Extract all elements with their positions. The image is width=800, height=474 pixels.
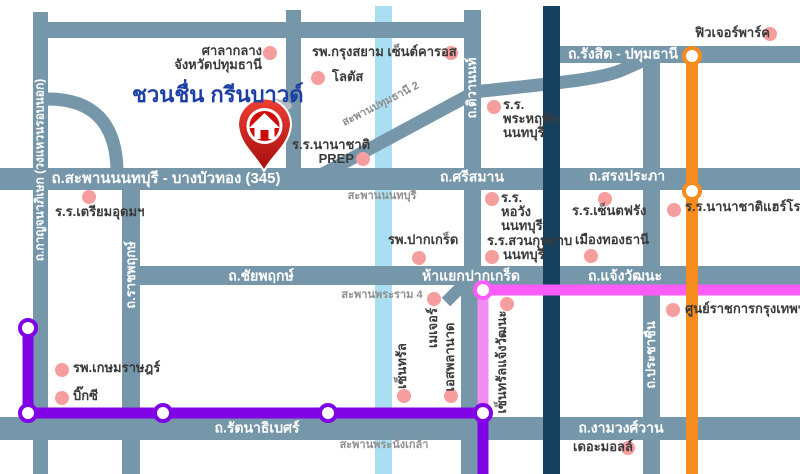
road-label-hayaek-pakkret: ห้าแยกปากเกร็ด	[422, 268, 520, 283]
road-label-srisaman: ถ.ศรีสมาน	[440, 169, 504, 184]
road-label-rangsit: ถ.รังสิต - ปทุมธานี	[568, 46, 678, 61]
station-marker	[475, 405, 491, 421]
road-prachachuen	[643, 55, 660, 474]
bridge-label-rama4: สะพานพระราม 4	[341, 290, 422, 302]
landmark-triamudom-school: ร.ร.เตรียมอุดมฯ	[55, 205, 144, 219]
road-top	[33, 22, 480, 38]
landmark-label: จังหวัดปทุมธานี	[170, 58, 262, 72]
road-label-prachachuen: ถ.ประชาชื่น	[644, 321, 658, 389]
landmark-central-chaengwatthana: เซ็นทรัลแจ้งวัฒนะ	[495, 311, 509, 414]
road-label-chaengwatthana: ถ.แจ้งวัฒนะ	[588, 268, 662, 283]
landmark-muangthong: เมืองทองธานี	[575, 233, 649, 247]
landmark-dot	[311, 71, 325, 85]
landmark-horwang-school: ร.ร. หอวัง นนทบุรี	[501, 191, 543, 233]
landmark-stfrancis-school: ร.ร.เซ็นตฟรัง	[572, 204, 646, 218]
landmark-label: ร.ร.สวนกุหลาบ	[487, 234, 572, 248]
landmark-krungsiam-hospital: รพ.กรุงสยาม เซ็นต์คารอส	[312, 45, 457, 59]
landmark-prep-school: ร.ร.นานาชาติ PREP	[292, 138, 354, 166]
location-map: ชวนชื่น กรีนบาวด์ ถ.สะพานนนทบุรี - บางบั…	[0, 0, 800, 474]
landmark-dot	[485, 192, 499, 206]
landmark-pakkret-hospital: รพ.ปากเกร็ด	[388, 233, 458, 247]
landmark-future-park: ฟิวเจอร์พาร์ค	[695, 26, 770, 40]
station-marker	[320, 405, 336, 421]
landmark-dot	[55, 363, 69, 377]
landmark-central: เซ็นทรัล	[395, 343, 409, 389]
road-label-chaiyaphruek: ถ.ชัยพฤกษ์	[228, 268, 293, 283]
landmark-label: ร.ร.นานาชาติ	[292, 138, 354, 152]
landmark-dot	[397, 389, 411, 403]
landmark-dot	[427, 292, 441, 306]
road-label-345: ถ.สะพานนนทบุรี - บางบัวทอง (345)	[52, 171, 281, 187]
road-label-ratchaphruek: ถ.ราชพฤกษ์	[124, 241, 138, 308]
landmark-label: นนทบุรี	[503, 126, 558, 140]
landmark-dot	[487, 100, 501, 114]
landmark-city-hall: ศาลากลาง จังหวัดปทุมธานี	[170, 44, 262, 72]
landmark-dot	[584, 249, 598, 263]
landmark-dot	[55, 391, 69, 405]
road-label-rattanathibet: ถ.รัตนาธิเบศร์	[214, 420, 299, 435]
landmark-dot	[666, 303, 680, 317]
landmark-major: เมเจอร์	[426, 308, 440, 348]
landmark-government-complex: ศูนย์ราชการกรุงเทพฯ	[685, 302, 800, 316]
landmark-lotus: โลตัส	[332, 70, 363, 84]
landmark-label: หอวัง	[501, 205, 543, 219]
road-label-kanchanaphisek: ถ.กาญจนาภิเษก (วงแหวนรอบนอก)	[34, 79, 47, 261]
landmark-label: ร.ร.	[501, 191, 543, 205]
landmark-dot	[263, 46, 277, 60]
landmark-label: PREP	[292, 152, 354, 166]
station-marker	[20, 405, 36, 421]
landmark-dot	[667, 203, 681, 217]
landmark-the-mall: เดอะมอลล์	[573, 440, 633, 454]
landmark-dot	[82, 190, 96, 204]
road-rattanathibet-ngamwongwan	[0, 417, 800, 440]
landmark-label: พระหฤทัย	[503, 112, 558, 126]
station-marker	[684, 48, 700, 64]
station-marker	[684, 183, 700, 199]
landmark-kasemrad-hospital: รพ.เกษมราษฎร์	[73, 361, 160, 375]
bridge-label-nonthaburi: สะพานนนทบุรี	[348, 191, 417, 203]
road-chaengwatthana-pakkret	[461, 285, 479, 474]
road-label-tiwanon: ถ.ติวานนท์	[465, 58, 479, 119]
landmark-bigc: บิ๊กซี	[73, 389, 98, 403]
landmark-label: นนทบุรี	[487, 248, 572, 262]
project-title: ชวนชื่น กรีนบาวด์	[132, 77, 304, 112]
landmark-esplanade: เอสพลานาด	[443, 323, 457, 392]
road-label-songprapha: ถ.สรงประภา	[589, 168, 665, 183]
landmark-label: ศาลากลาง	[170, 44, 262, 58]
station-marker	[155, 405, 171, 421]
road-curve-west	[48, 99, 117, 170]
landmark-label: ร.ร.	[503, 98, 558, 112]
landmark-dot	[356, 152, 370, 166]
road-label-ngamwongwan: ถ.งามวงศ์วาน	[578, 420, 663, 435]
station-marker	[475, 282, 491, 298]
landmark-harrow-school: ร.ร.นานาชาติแฮร์โรว์	[685, 200, 800, 214]
landmark-label: นนทบุรี	[501, 219, 543, 233]
landmark-dot	[412, 251, 426, 265]
station-marker	[20, 320, 36, 336]
landmark-phraharuthai-school: ร.ร. พระหฤทัย นนทบุรี	[503, 98, 558, 140]
road-tiwanon	[464, 10, 481, 286]
landmark-dot	[500, 297, 514, 311]
house-door	[261, 130, 269, 139]
bridge-label-phranangklao: สะพานพระนั่งเกล้า	[340, 440, 429, 452]
landmark-suankularb-school: ร.ร.สวนกุหลาบ นนทบุรี	[487, 234, 572, 262]
